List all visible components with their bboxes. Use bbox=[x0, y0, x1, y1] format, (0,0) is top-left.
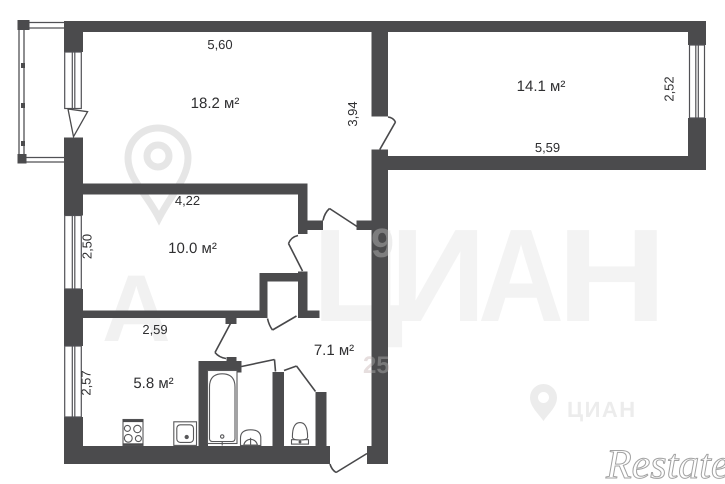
svg-text:ЦИАН: ЦИАН bbox=[567, 397, 637, 422]
svg-text:18.2 м²: 18.2 м² bbox=[191, 95, 240, 112]
svg-text:2,59: 2,59 bbox=[142, 322, 167, 337]
svg-text:А: А bbox=[478, 202, 564, 349]
svg-text:4,22: 4,22 bbox=[175, 193, 200, 208]
svg-text:14.1 м²: 14.1 м² bbox=[517, 78, 566, 95]
svg-text:2,57: 2,57 bbox=[79, 370, 94, 395]
svg-text:2,52: 2,52 bbox=[662, 76, 677, 101]
svg-text:25: 25 bbox=[363, 352, 390, 379]
svg-text:10.0 м²: 10.0 м² bbox=[168, 240, 217, 257]
svg-text:А: А bbox=[102, 256, 171, 362]
svg-text:3,94: 3,94 bbox=[345, 101, 360, 126]
svg-text:И: И bbox=[390, 202, 486, 349]
svg-text:2,50: 2,50 bbox=[80, 234, 95, 259]
svg-text:Restate: Restate bbox=[605, 442, 725, 484]
svg-text:5,59: 5,59 bbox=[535, 140, 560, 155]
svg-text:5,60: 5,60 bbox=[207, 37, 232, 52]
svg-text:Н: Н bbox=[557, 202, 667, 349]
svg-text:5.8 м²: 5.8 м² bbox=[133, 375, 173, 392]
svg-text:7.1 м²: 7.1 м² bbox=[314, 342, 354, 359]
svg-text:9: 9 bbox=[371, 220, 394, 266]
